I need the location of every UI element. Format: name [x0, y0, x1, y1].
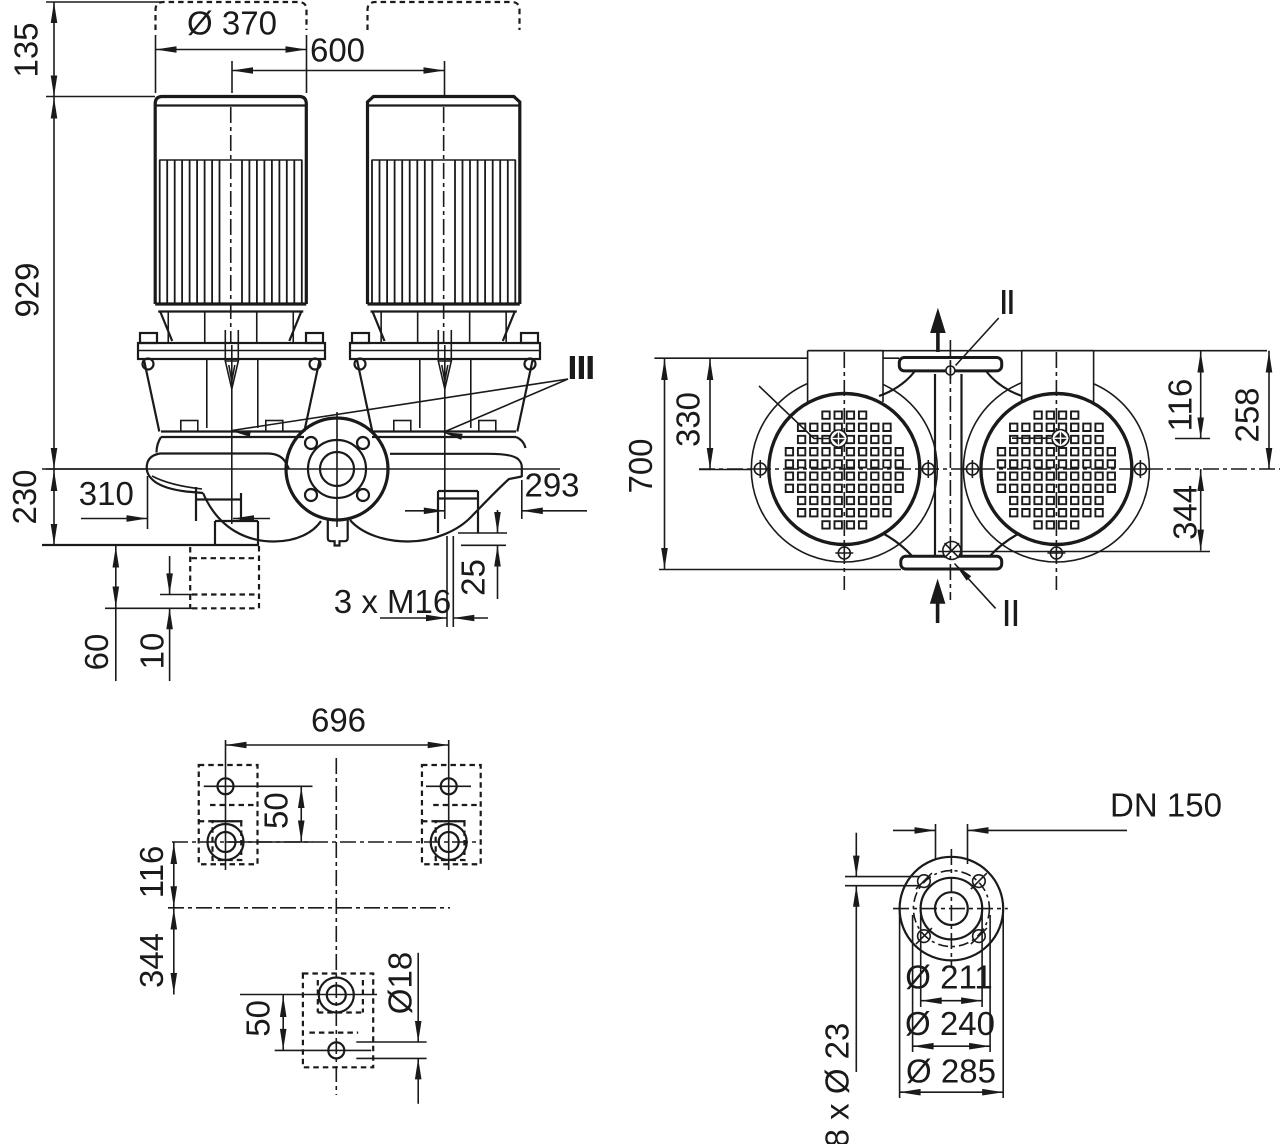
svg-text:50: 50: [239, 1000, 276, 1037]
svg-text:8 x Ø 23: 8 x Ø 23: [819, 1023, 856, 1144]
svg-text:696: 696: [311, 702, 366, 739]
svg-text:135: 135: [8, 22, 45, 77]
svg-text:50: 50: [258, 792, 295, 829]
svg-text:116: 116: [133, 846, 170, 899]
svg-text:116: 116: [1162, 379, 1199, 432]
svg-text:Ø18: Ø18: [382, 952, 419, 1014]
svg-text:Ø 285: Ø 285: [906, 1053, 996, 1090]
svg-text:3 x M16: 3 x M16: [334, 583, 451, 620]
svg-text:344: 344: [133, 933, 170, 988]
svg-text:DN 150: DN 150: [1110, 787, 1222, 824]
svg-text:Ø 211: Ø 211: [905, 959, 992, 996]
svg-text:230: 230: [6, 469, 43, 524]
svg-text:330: 330: [670, 392, 707, 447]
svg-text:Ø 370: Ø 370: [187, 5, 277, 42]
svg-text:60: 60: [78, 634, 115, 671]
svg-text:Ø 240: Ø 240: [905, 1005, 995, 1042]
svg-text:700: 700: [622, 438, 659, 493]
svg-text:258: 258: [1229, 387, 1266, 442]
svg-text:10: 10: [133, 633, 170, 670]
svg-text:929: 929: [9, 262, 46, 317]
svg-text:310: 310: [79, 475, 134, 512]
svg-text:25: 25: [455, 559, 492, 596]
svg-text:600: 600: [310, 32, 365, 69]
svg-text:293: 293: [524, 467, 579, 504]
svg-text:344: 344: [1166, 485, 1203, 540]
